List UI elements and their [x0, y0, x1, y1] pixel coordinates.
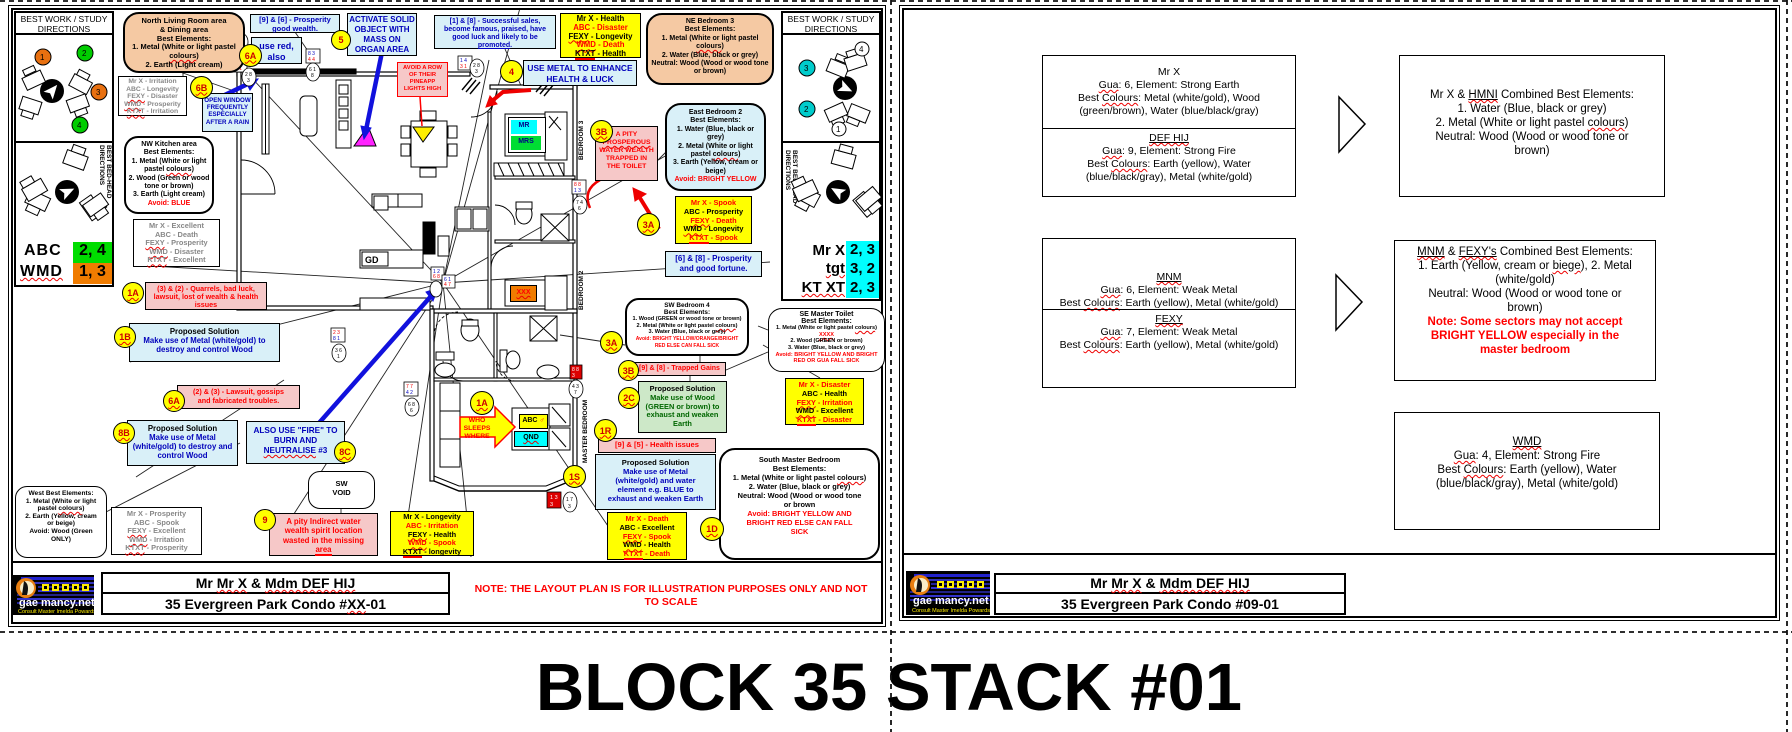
- svg-text:Consult Master Imelda Powards: Consult Master Imelda Powards: [18, 609, 94, 615]
- svg-text:2: 2: [804, 105, 809, 114]
- svg-text:SLEEPS: SLEEPS: [464, 425, 491, 432]
- svg-text:WHO: WHO: [469, 417, 486, 424]
- svg-text:Consult Master Imelda Powards: Consult Master Imelda Powards: [912, 608, 990, 614]
- svg-text:WHERE: WHERE: [464, 433, 490, 440]
- svg-text:3: 3: [96, 88, 101, 97]
- svg-text:gae mancy.net: gae mancy.net: [19, 597, 94, 609]
- svg-text:4: 4: [859, 45, 864, 54]
- svg-text:1: 1: [836, 125, 841, 134]
- svg-text:2: 2: [82, 49, 87, 58]
- svg-text:gae mancy.net: gae mancy.net: [913, 595, 989, 607]
- svg-text:3: 3: [804, 64, 809, 73]
- svg-text:1: 1: [40, 53, 45, 62]
- svg-text:4: 4: [77, 121, 82, 130]
